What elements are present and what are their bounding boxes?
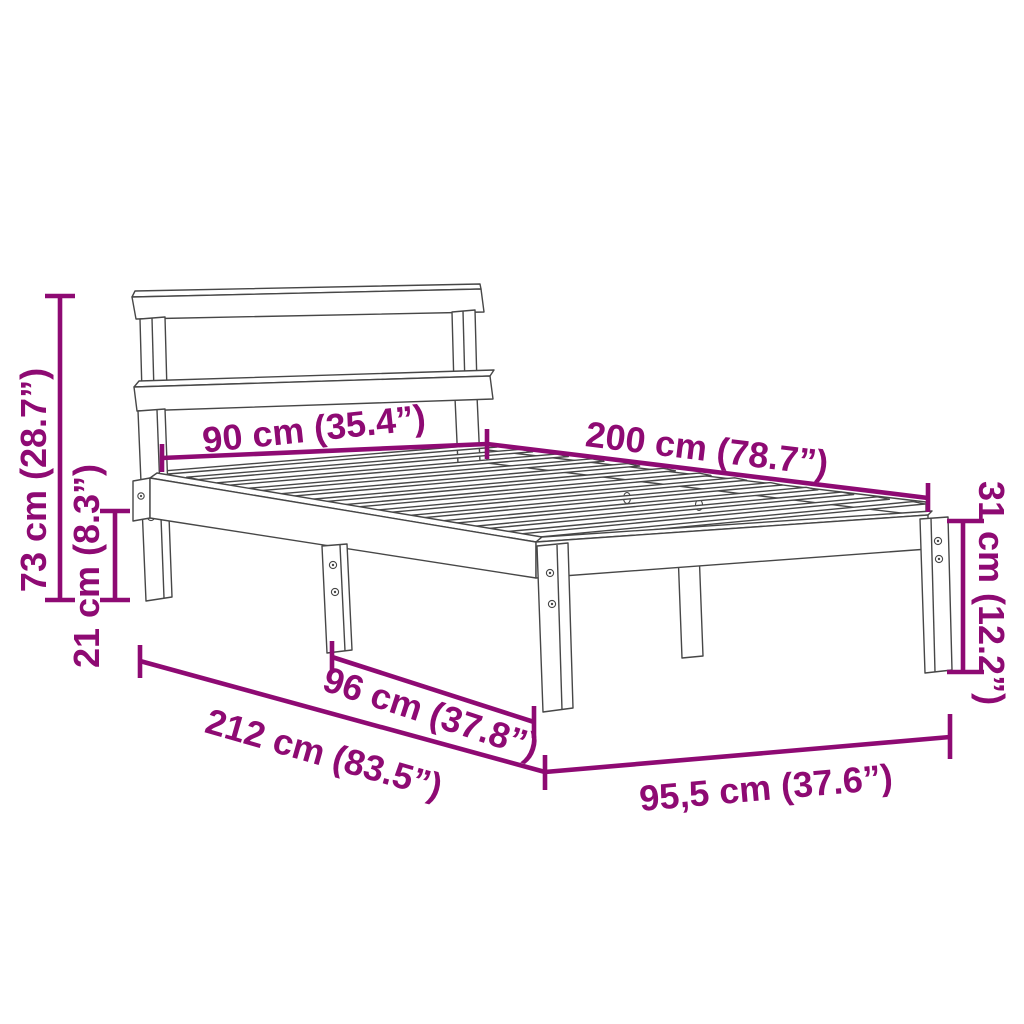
foot-near-leg: [537, 543, 573, 712]
headboard: [132, 284, 494, 411]
diagram-canvas: 73 cm (28.7”) 21 cm (8.3”) 90 cm (35.4”)…: [0, 0, 1024, 1024]
foot-far-leg: [920, 517, 952, 673]
near-center-leg: [322, 544, 352, 653]
dimension-label-under-bed-clearance: 21 cm (8.3”): [69, 464, 105, 668]
dimension-label-overall-height: 73 cm (28.7”): [16, 368, 52, 592]
bed-frame-diagram-svg: [0, 0, 1024, 1024]
dimension-label-frame-height: 31 cm (12.2”): [973, 481, 1009, 705]
bed-frame-drawing: [132, 284, 952, 712]
